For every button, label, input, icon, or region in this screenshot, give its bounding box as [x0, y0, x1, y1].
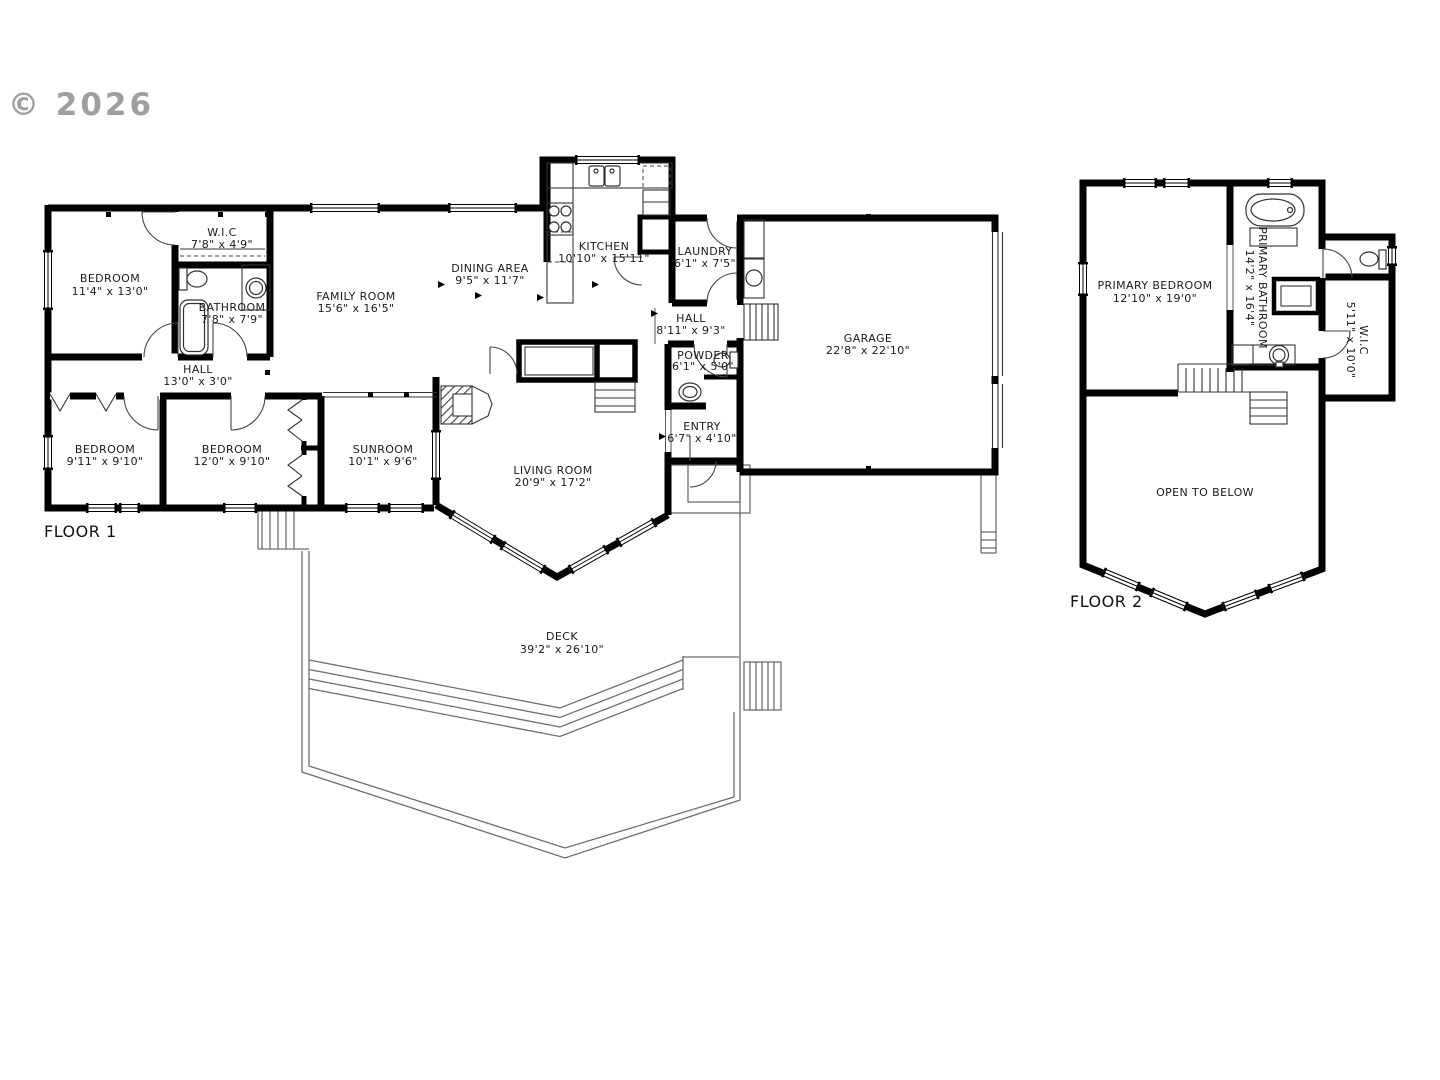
garage-doors [992, 232, 1003, 448]
room-label-deck-dims: 39'2" x 26'10" [520, 643, 604, 656]
windows [45, 157, 1396, 611]
room-label-bedroom-tl-dims: 11'4" x 13'0" [72, 285, 149, 298]
labels: © 2026 BEDROOM 11'4" x 13'0" W.I.C 7'8" … [8, 87, 1370, 656]
room-label-family-dims: 15'6" x 16'5" [318, 302, 395, 315]
room-label-wic-dims: 7'8" x 4'9" [191, 238, 253, 251]
kitchen-fixtures [547, 163, 672, 303]
room-label-primary-bedroom-dims: 12'10" x 19'0" [1113, 292, 1197, 305]
room-label-sunroom-dims: 10'1" x 9'6" [348, 455, 417, 468]
room-label-laundry-dims: 6'1" x 7'5" [674, 257, 736, 270]
deck-stair-right [744, 662, 781, 710]
room-label-primary-bathroom-name: PRIMARY BATHROOM [1256, 227, 1269, 349]
copyright-watermark: © 2026 [8, 87, 154, 123]
room-label-entry-dims: 6'7" x 4'10" [667, 432, 736, 445]
garage-utilities [744, 220, 764, 298]
toilet-icon [179, 268, 187, 290]
entry-porch [670, 465, 750, 513]
deck-stair-left [258, 511, 309, 549]
room-label-wic2-dims: 5'11" x 10'0" [1344, 302, 1357, 379]
room-label-kitchen-dims: 10'10" x 15'11" [558, 252, 650, 265]
room-label-dining-dims: 9'5" x 11'7" [455, 274, 524, 287]
room-label-deck-name: DECK [546, 630, 578, 643]
floor2-stairs [1178, 364, 1287, 424]
garage-side-steps [981, 473, 996, 553]
room-label-living-dims: 20'9" x 17'2" [515, 476, 592, 489]
room-label-open-to-below: OPEN TO BELOW [1156, 486, 1254, 499]
room-label-powder-dims: 6'1" x 5'0" [672, 360, 734, 373]
room-label-primary-bedroom-name: PRIMARY BEDROOM [1097, 279, 1212, 292]
room-label-bedroom-bm-dims: 12'0" x 9'10" [194, 455, 271, 468]
floorplan-page: © 2026 BEDROOM 11'4" x 13'0" W.I.C 7'8" … [0, 0, 1440, 1080]
room-label-garage-dims: 22'8" x 22'10" [826, 344, 910, 357]
room-label-bathroom-dims: 7'8" x 7'9" [201, 313, 263, 326]
room-label-wic2-name: W.I.C [1357, 325, 1370, 355]
room-label-hall-upper-dims: 8'11" x 9'3" [656, 324, 725, 337]
room-label-hall-lower-dims: 13'0" x 3'0" [163, 375, 232, 388]
toilet-icon [1379, 250, 1386, 269]
room-label-bedroom-tl-name: BEDROOM [80, 272, 140, 285]
floorplan-drawing: © 2026 BEDROOM 11'4" x 13'0" W.I.C 7'8" … [0, 0, 1440, 1080]
floor2-walls [1083, 183, 1392, 614]
fireplace [441, 386, 492, 424]
deck-outline [258, 465, 996, 858]
floor2-label: FLOOR 2 [1070, 592, 1143, 611]
room-label-bedroom-bl-dims: 9'11" x 9'10" [67, 455, 144, 468]
floor1-label: FLOOR 1 [44, 522, 117, 541]
room-label-primary-bathroom-dims: 14'2" x 16'4" [1243, 250, 1256, 327]
